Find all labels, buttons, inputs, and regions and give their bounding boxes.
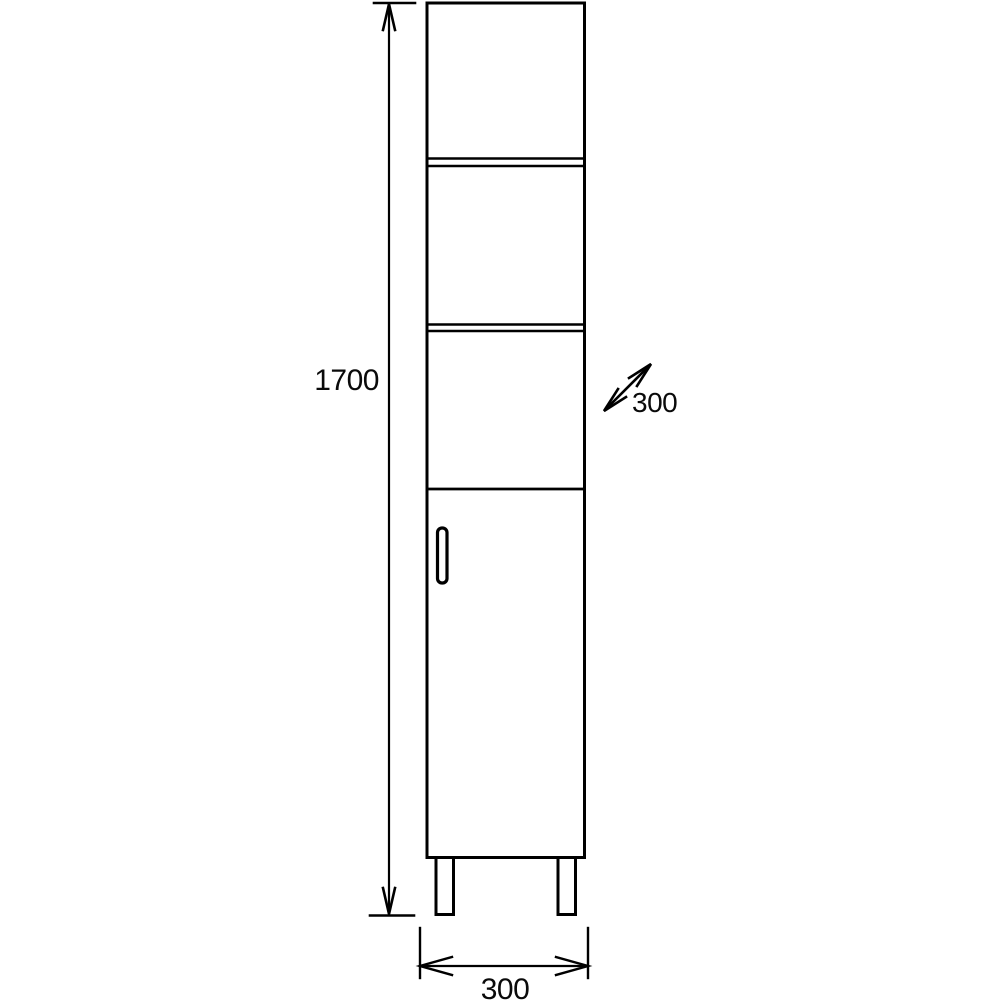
cabinet-body-outline xyxy=(427,3,585,858)
cabinet xyxy=(427,3,585,915)
right-leg xyxy=(558,858,576,915)
width-dimension xyxy=(420,928,588,978)
height-dimension xyxy=(370,3,415,916)
height-dim-label: 1700 xyxy=(314,364,379,397)
width-dim-label: 300 xyxy=(481,973,530,1000)
drawing-canvas: 1700 300 300 xyxy=(0,0,1000,1000)
cabinet-technical-drawing: 1700 300 300 xyxy=(0,0,1000,1000)
left-leg xyxy=(436,858,454,915)
door-handle xyxy=(438,528,448,583)
depth-dim-label: 300 xyxy=(632,387,677,418)
